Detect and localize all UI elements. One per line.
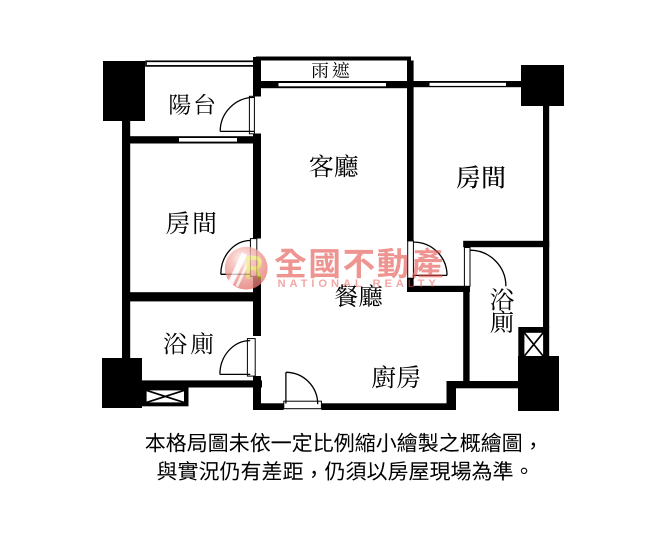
- svg-text:NATIONAL REALTY: NATIONAL REALTY: [278, 278, 440, 290]
- svg-text:R: R: [245, 250, 264, 287]
